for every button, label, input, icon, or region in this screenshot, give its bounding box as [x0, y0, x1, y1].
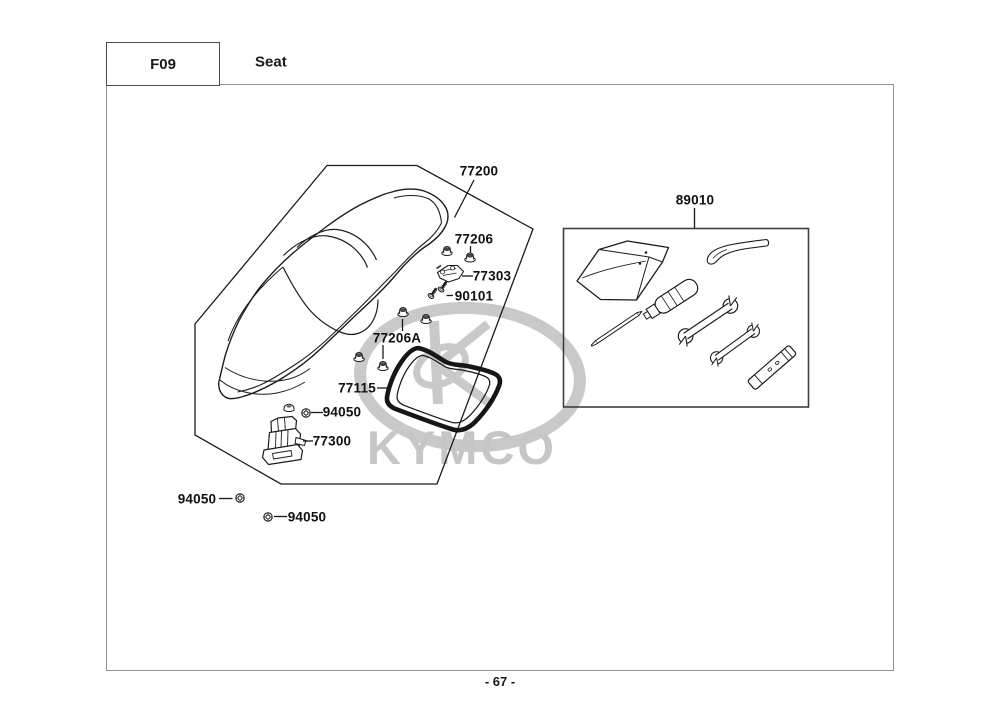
cap-nut: [442, 247, 452, 256]
screwdriver-blade: [591, 310, 643, 347]
part-label-screw-90101: 90101: [455, 289, 494, 304]
part-label-bolt-94050-b: 94050: [178, 492, 217, 507]
part-label-nut-77206: 77206: [455, 232, 494, 247]
part-label-seal-77115: 77115: [338, 381, 376, 396]
exploded-parts-diagram: KYMCO: [0, 0, 1000, 707]
part-label-latch-77300: 77300: [313, 434, 352, 449]
section-title: Seat: [255, 54, 287, 71]
part-label-seat-assembly: 77200: [460, 164, 499, 179]
flange-bolt: [302, 409, 310, 417]
part-label-bolt-94050-c: 94050: [288, 510, 327, 525]
pan-screw: [427, 286, 439, 299]
rubber-damper: [284, 404, 294, 411]
part-label-bracket-77303: 77303: [473, 269, 512, 284]
tool-kit-box: [564, 229, 809, 408]
flange-bolt: [236, 494, 244, 502]
parts-catalog-page: F09 Seat: [0, 0, 1000, 707]
open-end-wrench-small: [705, 320, 765, 369]
cap-nut: [378, 362, 388, 371]
part-label-nut-77206a: 77206A: [373, 331, 422, 346]
hook-spanner: [707, 240, 768, 265]
tube-spanner: [747, 345, 796, 390]
screwdriver-handle: [640, 276, 700, 323]
tool-pouch: [577, 241, 669, 300]
hinge-bracket: [437, 266, 464, 283]
part-label-bolt-94050-a: 94050: [323, 405, 362, 420]
section-code-box: F09: [106, 42, 220, 86]
seat-lock-catch: [263, 417, 307, 465]
part-label-tool-kit: 89010: [676, 193, 715, 208]
seat-illustration: [219, 189, 448, 399]
cap-nut: [465, 253, 475, 262]
cap-nut: [398, 308, 408, 317]
page-number: - 67 -: [0, 674, 1000, 689]
section-code: F09: [150, 56, 176, 73]
flange-bolt: [264, 513, 272, 521]
